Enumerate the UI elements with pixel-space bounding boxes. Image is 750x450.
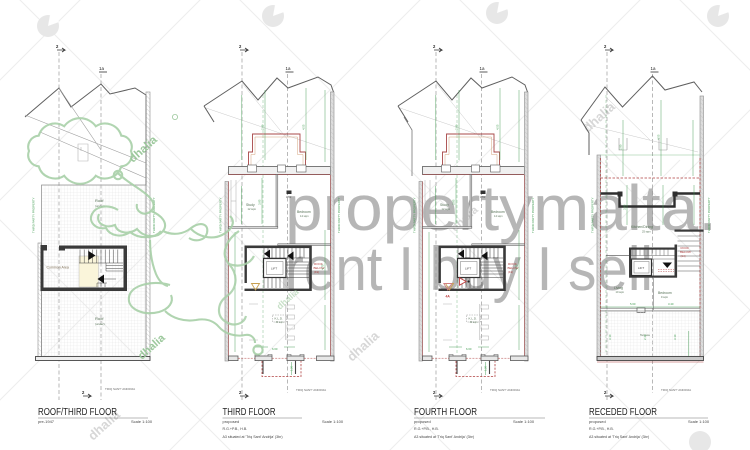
svg-text:5.60: 5.60	[630, 302, 636, 306]
svg-text:Living: Living	[614, 286, 623, 290]
svg-text:Bedroom: Bedroom	[297, 210, 311, 214]
svg-text:3.10: 3.10	[673, 334, 677, 340]
svg-text:R.G.+P.B., H.B.: R.G.+P.B., H.B.	[589, 427, 614, 431]
svg-text:10 sqm: 10 sqm	[616, 290, 625, 294]
svg-text:K.L.D.: K.L.D.	[275, 317, 284, 321]
svg-text:Scale 1:100: Scale 1:100	[688, 419, 710, 424]
svg-text:30 sqm: 30 sqm	[276, 321, 284, 324]
svg-text:4.70: 4.70	[321, 264, 325, 270]
svg-text:1a: 1a	[651, 66, 657, 71]
svg-text:TRIQ SANT' ANDRIJA: TRIQ SANT' ANDRIJA	[296, 388, 326, 392]
svg-text:Kitchen/Dining: Kitchen/Dining	[631, 225, 653, 229]
svg-text:6.60: 6.60	[272, 347, 278, 351]
svg-text:THIRD PARTY PROPERTY: THIRD PARTY PROPERTY	[219, 197, 223, 233]
svg-text:Roof: Roof	[95, 198, 104, 203]
svg-text:BELOW: BELOW	[680, 250, 691, 254]
svg-text:4A: 4A	[446, 295, 451, 299]
svg-text:2.40: 2.40	[643, 334, 647, 340]
svg-text:12 sqm: 12 sqm	[248, 207, 257, 211]
svg-text:A3 situated at 'Triq Sant' And: A3 situated at 'Triq Sant' Andrija' (3br…	[223, 435, 283, 439]
svg-text:proposed: proposed	[589, 419, 606, 424]
svg-text:4.55: 4.55	[302, 124, 306, 130]
svg-text:RECEDED FLOOR: RECEDED FLOOR	[589, 407, 657, 418]
svg-text:LIFT: LIFT	[638, 266, 644, 270]
svg-text:1a: 1a	[99, 66, 105, 71]
svg-text:14 sqm: 14 sqm	[300, 214, 309, 218]
svg-text:Scale 1:100: Scale 1:100	[322, 419, 344, 424]
svg-text:proposed: proposed	[414, 419, 431, 424]
svg-text:25 sqm: 25 sqm	[642, 230, 651, 234]
svg-text:3.85: 3.85	[623, 204, 627, 210]
svg-text:Common Area: Common Area	[47, 266, 69, 270]
svg-text:2.90: 2.90	[619, 144, 623, 150]
svg-text:ROOF/THIRD FLOOR: ROOF/THIRD FLOOR	[38, 407, 117, 418]
svg-text:Bedroom: Bedroom	[658, 291, 672, 295]
svg-text:4.55: 4.55	[657, 134, 661, 140]
svg-text:A3 situated at 'Triq Sant' And: A3 situated at 'Triq Sant' Andrija' (3br…	[589, 435, 649, 439]
svg-text:pre-1947: pre-1947	[38, 419, 55, 424]
svg-text:W02: W02	[286, 195, 292, 199]
svg-text:FOURTH FLOOR: FOURTH FLOOR	[414, 407, 477, 418]
svg-text:3.40: 3.40	[668, 302, 674, 306]
svg-text:R.G.+P.B., H.B.: R.G.+P.B., H.B.	[414, 427, 439, 431]
svg-text:(3rd): (3rd)	[681, 255, 686, 258]
svg-text:THIRD PARTY PROPERTY: THIRD PARTY PROPERTY	[591, 197, 595, 233]
svg-text:Roof: Roof	[95, 316, 104, 321]
svg-text:Study: Study	[246, 203, 255, 207]
svg-text:3.85: 3.85	[258, 199, 262, 205]
svg-text:2.90: 2.90	[261, 124, 265, 130]
svg-text:THIRD PARTY PROPERTY: THIRD PARTY PROPERTY	[32, 197, 36, 233]
svg-text:THIRD PARTY PROPERTY: THIRD PARTY PROPERTY	[337, 197, 341, 233]
svg-text:(under): (under)	[95, 322, 105, 326]
svg-text:TRIQ SANT' ANDRIJA: TRIQ SANT' ANDRIJA	[105, 387, 135, 391]
svg-text:THIRD PARTY PROPERTY: THIRD PARTY PROPERTY	[707, 197, 711, 233]
svg-text:TRIQ SANT' ANDRIJA: TRIQ SANT' ANDRIJA	[661, 388, 691, 392]
svg-text:THIRD FLOOR: THIRD FLOOR	[223, 407, 276, 418]
svg-text:LIFT: LIFT	[271, 267, 277, 271]
svg-text:(3rd): (3rd)	[314, 271, 319, 274]
svg-text:Scale 1:100: Scale 1:100	[131, 419, 153, 424]
svg-text:1.20: 1.20	[290, 365, 294, 371]
svg-text:proposed: proposed	[223, 419, 240, 424]
svg-text:R.G.+P.B., H.B.: R.G.+P.B., H.B.	[223, 427, 248, 431]
svg-text:1a: 1a	[286, 66, 292, 71]
svg-text:3.10: 3.10	[608, 334, 612, 340]
svg-text:9 sqm: 9 sqm	[661, 295, 668, 299]
svg-text:Scale 1:100: Scale 1:100	[513, 419, 535, 424]
svg-text:A3 situated at 'Triq Sant' And: A3 situated at 'Triq Sant' Andrija' (3br…	[414, 435, 474, 439]
